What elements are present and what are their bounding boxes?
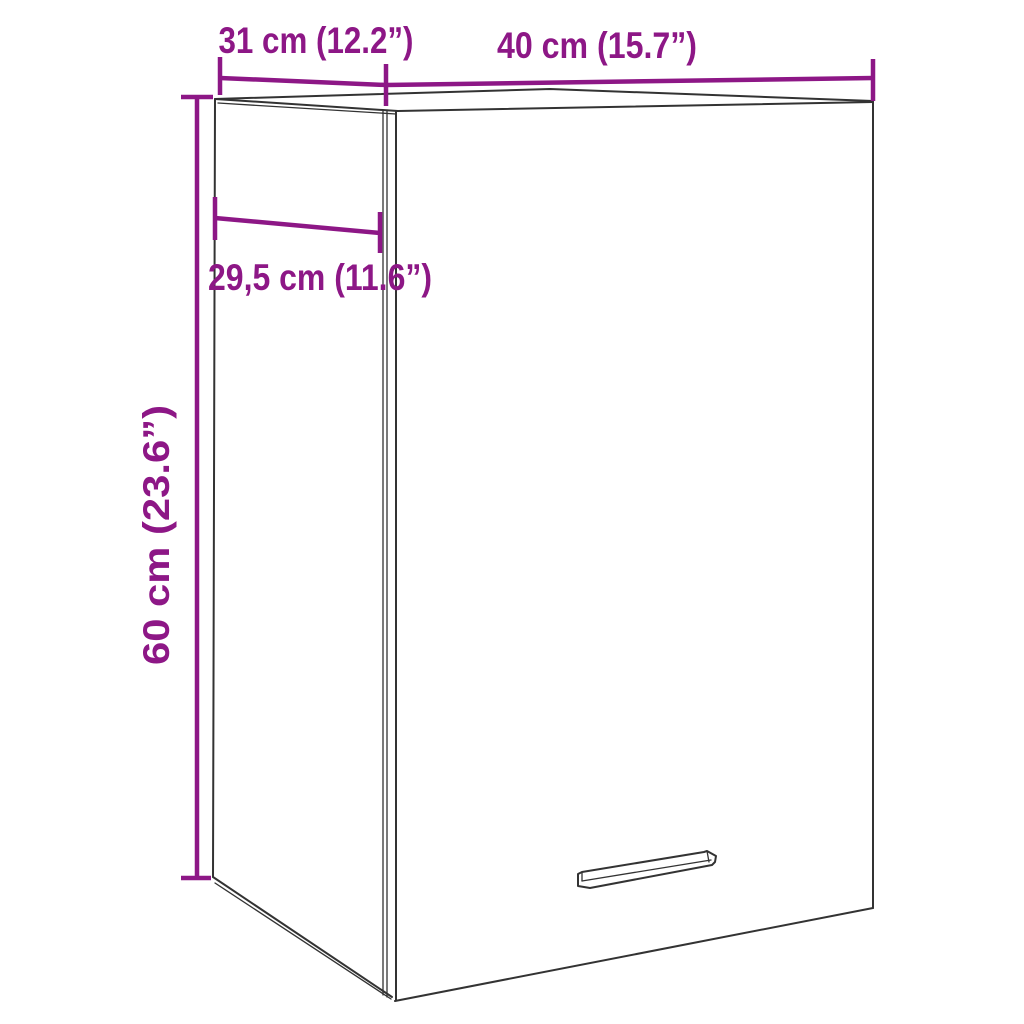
door-bottom-edge <box>395 908 873 1001</box>
cabinet-diagram-canvas: 60 cm (23.6”) 31 cm (12.2”) 40 cm (15.7”… <box>0 0 1024 1024</box>
dimension-diagram: 60 cm (23.6”) 31 cm (12.2”) 40 cm (15.7”… <box>0 0 1024 1024</box>
side-panel-bottom-edge-inner <box>215 883 391 999</box>
cabinet-top-back-edge <box>215 89 873 101</box>
handle-outline <box>578 851 716 888</box>
top-width-dimension-line <box>386 78 873 85</box>
side-depth-label: 29,5 cm (11.6”) <box>208 257 432 298</box>
dimension-top-depth: 31 cm (12.2”) <box>219 20 414 106</box>
cabinet-top-front-edge <box>398 102 873 111</box>
height-label: 60 cm (23.6”) <box>136 405 177 665</box>
handle <box>578 851 716 888</box>
dimension-top-width: 40 cm (15.7”) <box>386 25 873 101</box>
dimension-side-depth: 29,5 cm (11.6”) <box>208 197 432 298</box>
side-depth-dimension-line <box>215 218 380 233</box>
side-panel-bottom-edge <box>213 877 392 997</box>
top-depth-label: 31 cm (12.2”) <box>219 20 414 61</box>
top-width-label: 40 cm (15.7”) <box>497 25 697 66</box>
top-depth-dimension-line <box>220 78 386 85</box>
dimension-height: 60 cm (23.6”) <box>136 97 213 878</box>
